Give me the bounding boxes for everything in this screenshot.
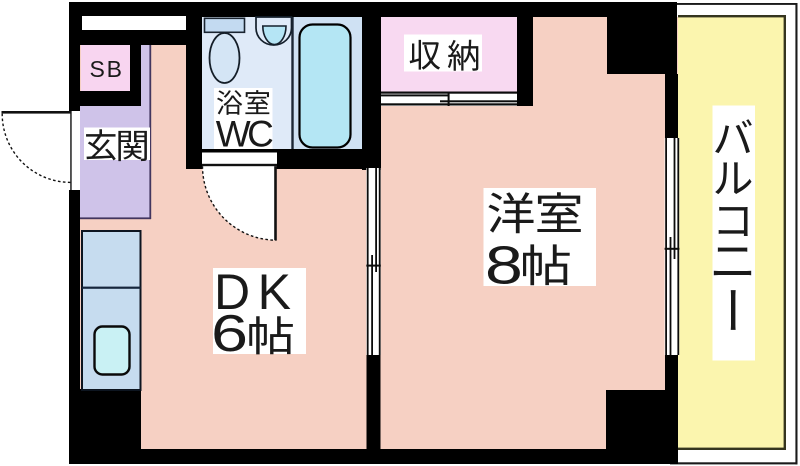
svg-text:6: 6 xyxy=(211,304,248,362)
svg-text:SB: SB xyxy=(90,56,124,82)
svg-text:8: 8 xyxy=(485,235,523,296)
svg-text:WC: WC xyxy=(216,114,273,155)
